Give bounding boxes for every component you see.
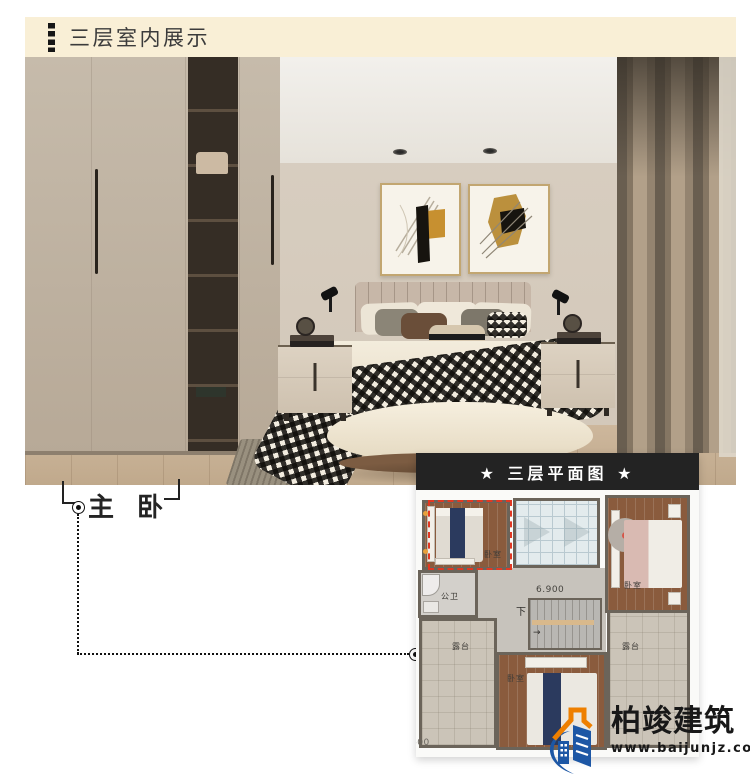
recessed-light-icon bbox=[483, 148, 497, 154]
plan-room-label: 露台 bbox=[622, 641, 640, 652]
nightstand-leg bbox=[284, 413, 289, 421]
section-header: 三层室内展示 bbox=[25, 17, 736, 57]
lumbar-pillow-band bbox=[429, 334, 485, 340]
plan-nightstand bbox=[668, 504, 681, 518]
nightstand-leg bbox=[604, 408, 609, 416]
shelf-decor-book bbox=[196, 387, 226, 397]
books bbox=[557, 332, 601, 344]
wardrobe-seam bbox=[185, 57, 186, 455]
plan-bed bbox=[624, 520, 682, 588]
plan-room-label: 卧室 bbox=[624, 580, 642, 591]
sheer-curtain bbox=[719, 57, 736, 457]
skylight-glyph bbox=[564, 517, 590, 547]
drawer-handle bbox=[314, 363, 317, 391]
wall-lamp-right bbox=[557, 300, 560, 315]
plan-skylight bbox=[513, 498, 600, 568]
brand-name: 柏竣建筑 bbox=[611, 705, 750, 740]
plan-room-bedroom-right: 卧室 bbox=[605, 495, 690, 613]
nightstand-leg bbox=[547, 408, 552, 416]
checkered-pillow bbox=[487, 312, 527, 338]
plan-sink bbox=[423, 601, 439, 613]
alarm-clock bbox=[563, 314, 582, 333]
wall-lamp-left bbox=[329, 297, 332, 312]
plan-stair-rail bbox=[532, 620, 594, 625]
recessed-light-icon bbox=[393, 149, 407, 155]
wall-art-right-graphic bbox=[470, 186, 544, 268]
floor-plan-title: ★ 三层平面图 ★ bbox=[416, 453, 699, 490]
plan-bathtub bbox=[422, 574, 440, 596]
plan-wardrobe bbox=[525, 657, 587, 668]
dashed-bar-icon bbox=[48, 23, 55, 52]
alarm-clock bbox=[296, 317, 315, 336]
master-bedroom-highlight-box bbox=[428, 500, 512, 570]
wall-art-left bbox=[380, 183, 461, 276]
plan-room-label: 露台 bbox=[452, 641, 470, 652]
plan-nightstand bbox=[668, 592, 681, 605]
plan-room-bathroom: 公卫 bbox=[418, 570, 478, 618]
bedroom-photo bbox=[25, 57, 736, 485]
leader-line-horizontal bbox=[77, 653, 409, 655]
leader-start-bullet-icon bbox=[72, 501, 85, 514]
section-title: 三层室内展示 bbox=[69, 22, 210, 52]
plan-room-terrace-left: 露台 bbox=[419, 618, 497, 748]
brand-logo: 柏竣建筑 www.baijunjz.com bbox=[544, 705, 750, 777]
nightstand-right bbox=[541, 342, 615, 408]
plan-stairs-down-label: 下 bbox=[516, 603, 527, 618]
plan-elevation-label: 6.900 bbox=[536, 585, 564, 595]
brand-logo-mark-icon bbox=[544, 705, 606, 777]
wardrobe-seam bbox=[239, 57, 240, 455]
drawer-handle bbox=[577, 360, 580, 388]
leader-line-vertical bbox=[77, 514, 79, 654]
wall-lamp-right-head bbox=[551, 289, 570, 305]
page: { "header": { "title": "三层室内展示", "bg_col… bbox=[0, 0, 750, 783]
nightstand-left bbox=[278, 345, 352, 413]
label-bracket-right bbox=[164, 479, 180, 500]
open-shelving bbox=[188, 57, 238, 455]
wall-art-right bbox=[468, 184, 550, 274]
plan-partial-dimension: 600 bbox=[416, 738, 430, 748]
brand-logo-text: 柏竣建筑 www.baijunjz.com bbox=[611, 705, 750, 756]
shelf-decor-bag bbox=[196, 152, 228, 174]
plan-room-label: 卧室 bbox=[507, 673, 525, 684]
stair-direction-arrow-icon: → bbox=[533, 628, 541, 638]
plan-stairs bbox=[528, 598, 602, 650]
wardrobe-handle bbox=[95, 169, 98, 274]
books bbox=[290, 335, 334, 347]
wardrobe bbox=[25, 57, 280, 455]
wardrobe-handle bbox=[271, 175, 274, 265]
nightstand-leg bbox=[341, 413, 346, 421]
room-callout-label: 主 卧 bbox=[88, 487, 170, 524]
plan-room-label: 公卫 bbox=[441, 591, 459, 602]
wardrobe-seam bbox=[91, 57, 92, 455]
brand-website: www.baijunjz.com bbox=[611, 741, 750, 756]
skylight-glyph bbox=[524, 517, 550, 547]
wall-art-left-graphic bbox=[382, 185, 455, 270]
